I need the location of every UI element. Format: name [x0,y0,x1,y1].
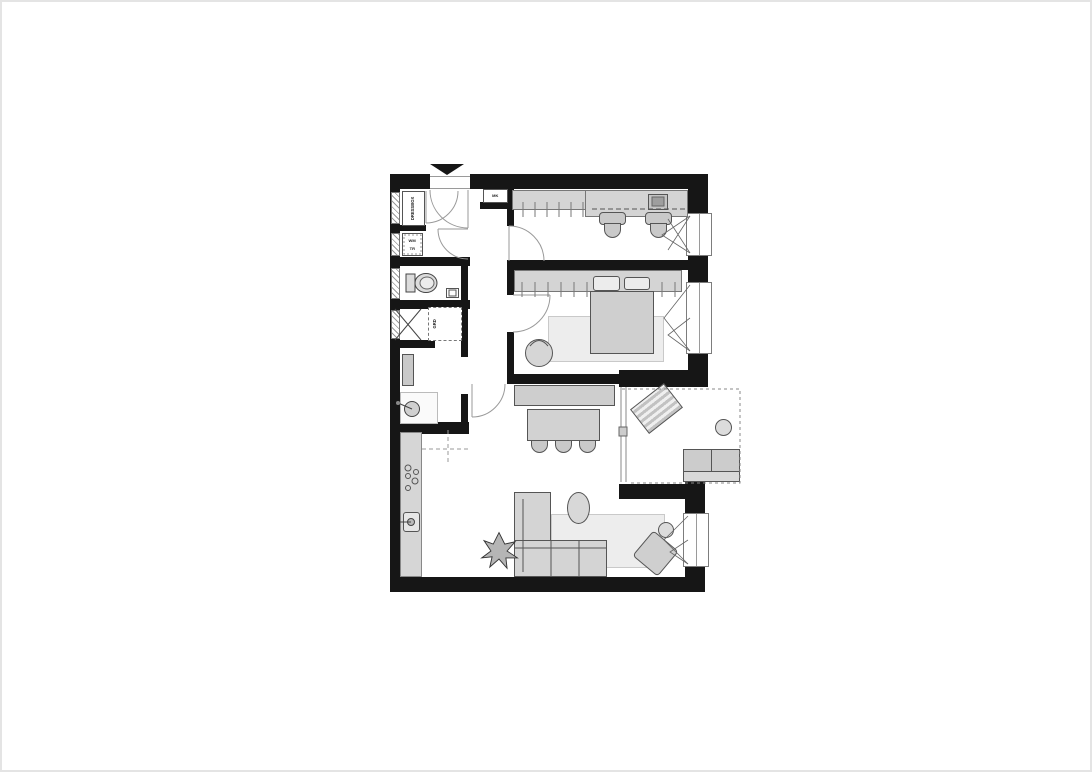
sofa-seats [514,540,607,577]
entry-arrow-icon [430,164,464,175]
wall-top-right [470,174,708,189]
kitchen-sink [403,512,420,532]
bed-blanket [590,291,654,354]
desk-chair-2-back [650,223,667,238]
bar-stool-1 [531,440,548,453]
wall-niche-4 [391,310,400,339]
outdoor-sofa [683,449,740,482]
upper-cabinets-dashed [422,430,470,464]
shower-tray [400,392,438,424]
wall-office-bedroom [507,260,688,270]
side-table [658,522,674,538]
hall-wardrobe-label: GRD [428,307,442,341]
bedroom-pouf [525,339,553,367]
living-window [683,513,709,567]
wall-corridor-right-2 [507,260,514,295]
wall-corridor-right-3 [507,332,514,374]
living-door-arc [472,384,505,417]
wall-shaft-bottom [390,340,435,348]
balcony-glazing [619,387,627,482]
wall-niche-1 [391,192,400,224]
wall-bedroom-bottom [507,374,619,384]
bar-stool-3 [579,440,596,453]
kitchen-counter [514,385,615,406]
dressbox-label: DRESSBOX [401,191,425,226]
wall-balcony-bottom [619,484,695,499]
bedroom-window [686,282,712,354]
office-window [686,213,712,256]
wall-right-5 [685,565,705,592]
wall-meter-bottom [480,202,508,209]
wall-bottom [390,577,705,592]
desk-chair-1-back [604,223,621,238]
wall-corridor-left-1 [461,257,468,357]
wall-right-3 [688,352,708,370]
dressbox-door-arc [426,191,458,223]
office-wardrobe [512,190,586,210]
kitchen-counter-left [400,432,422,577]
wall-niche-3 [391,268,400,299]
washer-dryer-label: WMTR [402,233,423,256]
entry-threshold [430,176,470,189]
bed-pillow-2 [624,277,650,290]
entry-door-arc [430,190,468,228]
wall-right-2 [688,254,708,284]
floor-plan-canvas: DRESSBOX WMTR MK GRD [0,0,1092,772]
meter-cabinet-label: MK [483,189,508,203]
bedroom-door-arc [513,295,550,332]
toilet [406,274,437,293]
wall-niche-2 [391,233,400,256]
hand-basin [446,288,459,298]
bed-pillow-1 [593,276,620,291]
desktop-computer [648,194,668,210]
plant-living [482,533,518,569]
lounge-chair [630,383,683,434]
wc-door-arc [438,229,468,259]
wall-wc-top [390,257,470,266]
coffee-table [567,492,590,524]
radiator [402,354,414,386]
wall-right-1 [688,174,708,215]
kitchen-island [527,409,600,441]
balcony-table [715,419,732,436]
bar-stool-2 [555,440,572,453]
office-door-arc [509,226,544,261]
